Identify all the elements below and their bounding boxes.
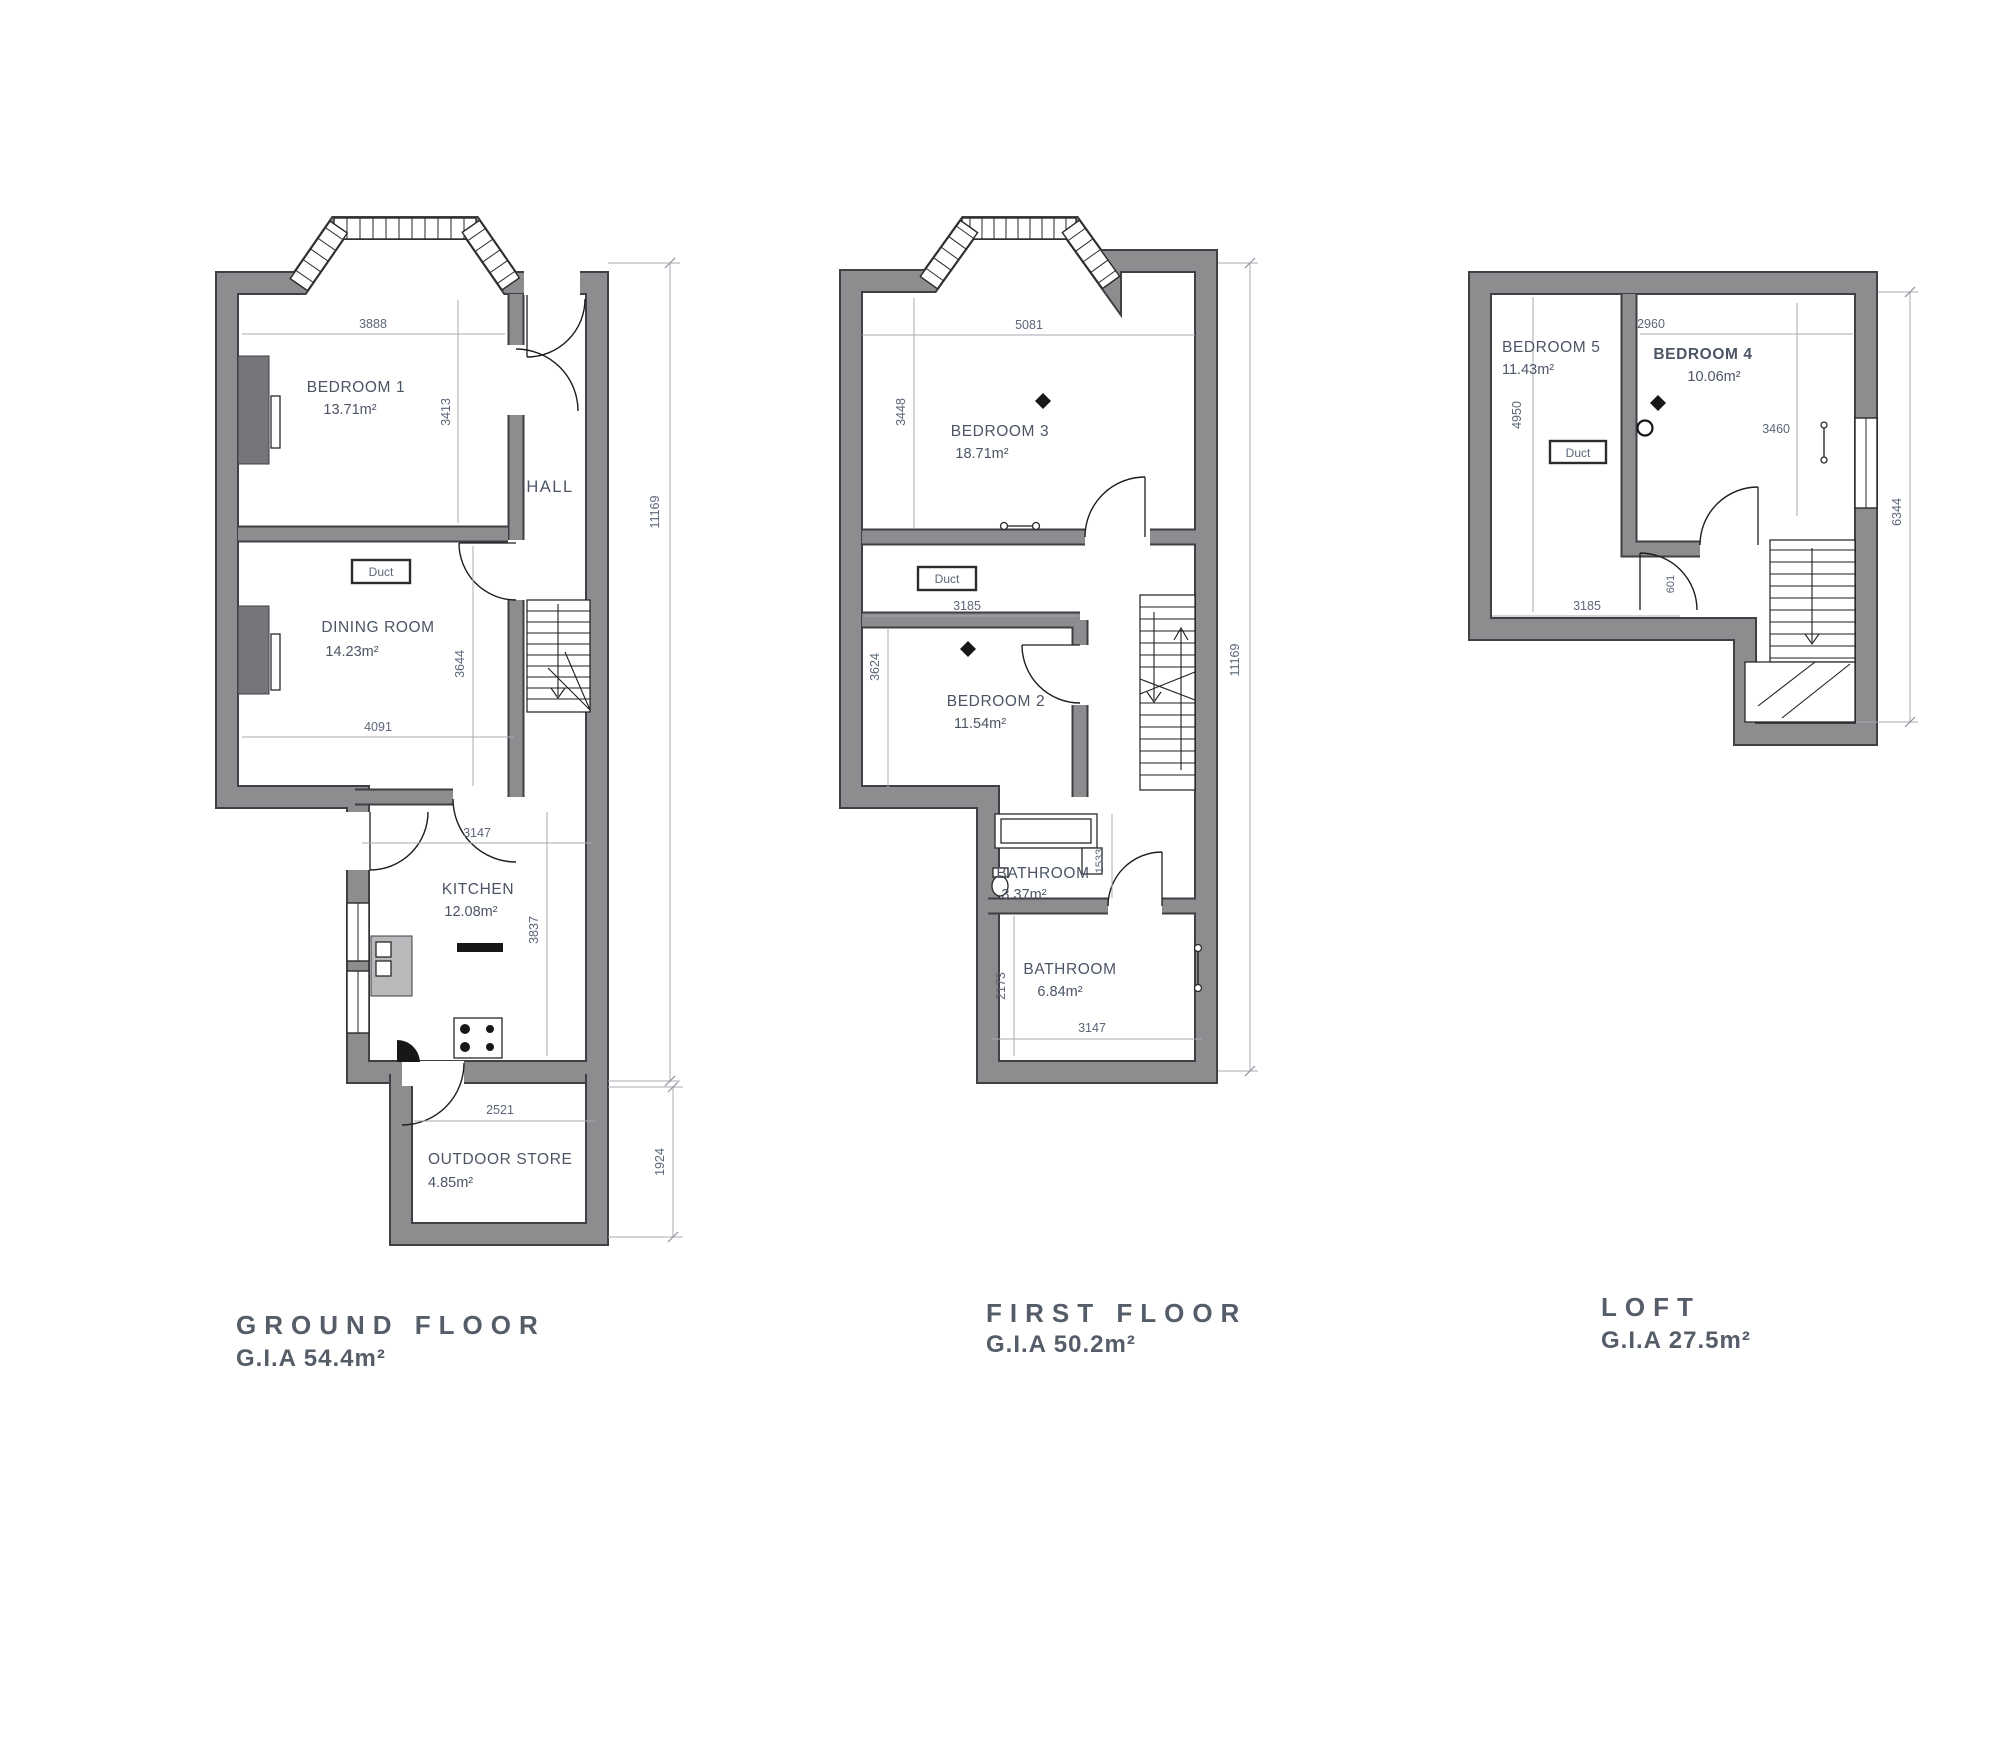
chimney-breast — [238, 606, 269, 694]
loft-gia: G.I.A 27.5m² — [1601, 1327, 1751, 1354]
downlight-icon — [1638, 421, 1653, 436]
room-area-bedroom2: 11.54m² — [954, 716, 1006, 732]
floor-titles: GROUND FLOOR G.I.A 54.4m² FIRST FLOOR G.… — [236, 1292, 1751, 1372]
dim-bedroom1-height: 3413 — [439, 398, 453, 426]
side-door-opening — [346, 812, 370, 870]
dim-loft-door: 601 — [1665, 575, 1677, 593]
room-label-bedroom4: BEDROOM 4 — [1653, 346, 1752, 363]
room-label-kitchen: KITCHEN — [442, 881, 514, 898]
door-leaf-icon — [397, 1040, 420, 1062]
room-label-bedroom3: BEDROOM 3 — [951, 423, 1049, 440]
loft-window — [1821, 418, 1877, 508]
dim-bedroom4-height: 3460 — [1762, 422, 1790, 436]
first-floor-title: FIRST FLOOR — [986, 1298, 1247, 1328]
dim-bedroom1-width: 3888 — [359, 317, 387, 331]
room-area-dining: 14.23m² — [325, 644, 378, 660]
dim-bedroom5-width: 3185 — [1573, 599, 1601, 613]
room-label-store: OUTDOOR STORE — [428, 1151, 572, 1168]
store-door-opening — [402, 1061, 464, 1086]
dim-bathroom-width: 3147 — [1078, 1021, 1106, 1035]
dimension-lines — [242, 258, 683, 1242]
dim-kitchen-width: 3147 — [463, 826, 491, 840]
dim-bathroom-small-height: 1533 — [1094, 849, 1106, 873]
dim-first-overall-height: 11169 — [1228, 644, 1242, 677]
ceiling-light-icon — [960, 641, 976, 657]
radiator — [271, 634, 280, 690]
dim-bedroom2-height: 3624 — [868, 653, 882, 681]
dim-bedroom2-width: 3185 — [953, 599, 981, 613]
dim-bedroom5-height: 4950 — [1510, 401, 1524, 429]
front-door-opening — [524, 271, 580, 295]
kitchen-fixtures — [371, 936, 503, 1062]
worktop — [457, 943, 503, 952]
dim-bathroom-height: 2173 — [994, 972, 1008, 1000]
duct-label: Duct — [935, 572, 960, 586]
loft-plan: Duct 2960 3460 4950 3185 601 6344 BEDROO… — [1480, 283, 1918, 734]
dim-store-height: 1924 — [653, 1148, 667, 1176]
room-label-hall: HALL — [526, 478, 573, 496]
staircase — [1140, 595, 1195, 790]
chimney-breast — [238, 356, 269, 464]
floorplan-sheet: Duct 3888 3413 4091 3644 3147 3837 2521 … — [0, 0, 2000, 1740]
staircase — [527, 600, 590, 712]
duct-label: Duct — [1566, 446, 1591, 460]
room-label-bedroom1: BEDROOM 1 — [307, 379, 405, 396]
room-area-bathroom-small: 3.37m² — [1001, 887, 1046, 903]
bay-window — [290, 218, 519, 291]
room-area-bathroom: 6.84m² — [1037, 984, 1082, 1000]
ceiling-light-icon — [1035, 393, 1051, 409]
dim-loft-overall-height: 6344 — [1890, 498, 1904, 526]
floorplan-drawing: Duct 3888 3413 4091 3644 3147 3837 2521 … — [0, 0, 2000, 1740]
dim-dining-width: 4091 — [364, 720, 392, 734]
room-area-store: 4.85m² — [428, 1175, 473, 1191]
bay-window — [920, 218, 1119, 289]
dim-store-width: 2521 — [486, 1103, 514, 1117]
room-area-bedroom4: 10.06m² — [1687, 369, 1740, 385]
room-area-bedroom3: 18.71m² — [955, 446, 1008, 462]
dim-kitchen-height: 3837 — [527, 916, 541, 944]
loft-title: LOFT — [1601, 1292, 1701, 1322]
room-label-dining: DINING ROOM — [321, 619, 434, 636]
dim-bedroom3-height: 3448 — [894, 398, 908, 426]
ceiling-light-icon — [1650, 395, 1666, 411]
first-floor-gia: G.I.A 50.2m² — [986, 1331, 1136, 1358]
room-area-bedroom5: 11.43m² — [1502, 362, 1554, 378]
dim-bedroom4-width: 2960 — [1637, 317, 1665, 331]
room-label-bathroom-small: BATHROOM — [996, 865, 1089, 882]
ground-floor-plan: Duct 3888 3413 4091 3644 3147 3837 2521 … — [227, 218, 683, 1242]
room-area-kitchen: 12.08m² — [444, 904, 497, 920]
stove — [454, 1018, 502, 1058]
room-label-bathroom: BATHROOM — [1023, 961, 1116, 978]
staircase — [1745, 540, 1855, 722]
duct-label: Duct — [369, 565, 394, 579]
ground-floor-gia: G.I.A 54.4m² — [236, 1345, 386, 1372]
room-label-bedroom5: BEDROOM 5 — [1502, 339, 1600, 356]
dim-dining-height: 3644 — [453, 650, 467, 678]
ground-floor-title: GROUND FLOOR — [236, 1310, 546, 1340]
dim-ground-overall-height: 11169 — [648, 496, 662, 529]
radiator — [271, 396, 280, 448]
room-label-bedroom2: BEDROOM 2 — [947, 693, 1045, 710]
first-floor-plan: Duct 5081 3448 3185 3624 1533 2173 3147 … — [851, 218, 1258, 1076]
dim-bedroom3-width: 5081 — [1015, 318, 1043, 332]
room-area-bedroom1: 13.71m² — [323, 402, 376, 418]
